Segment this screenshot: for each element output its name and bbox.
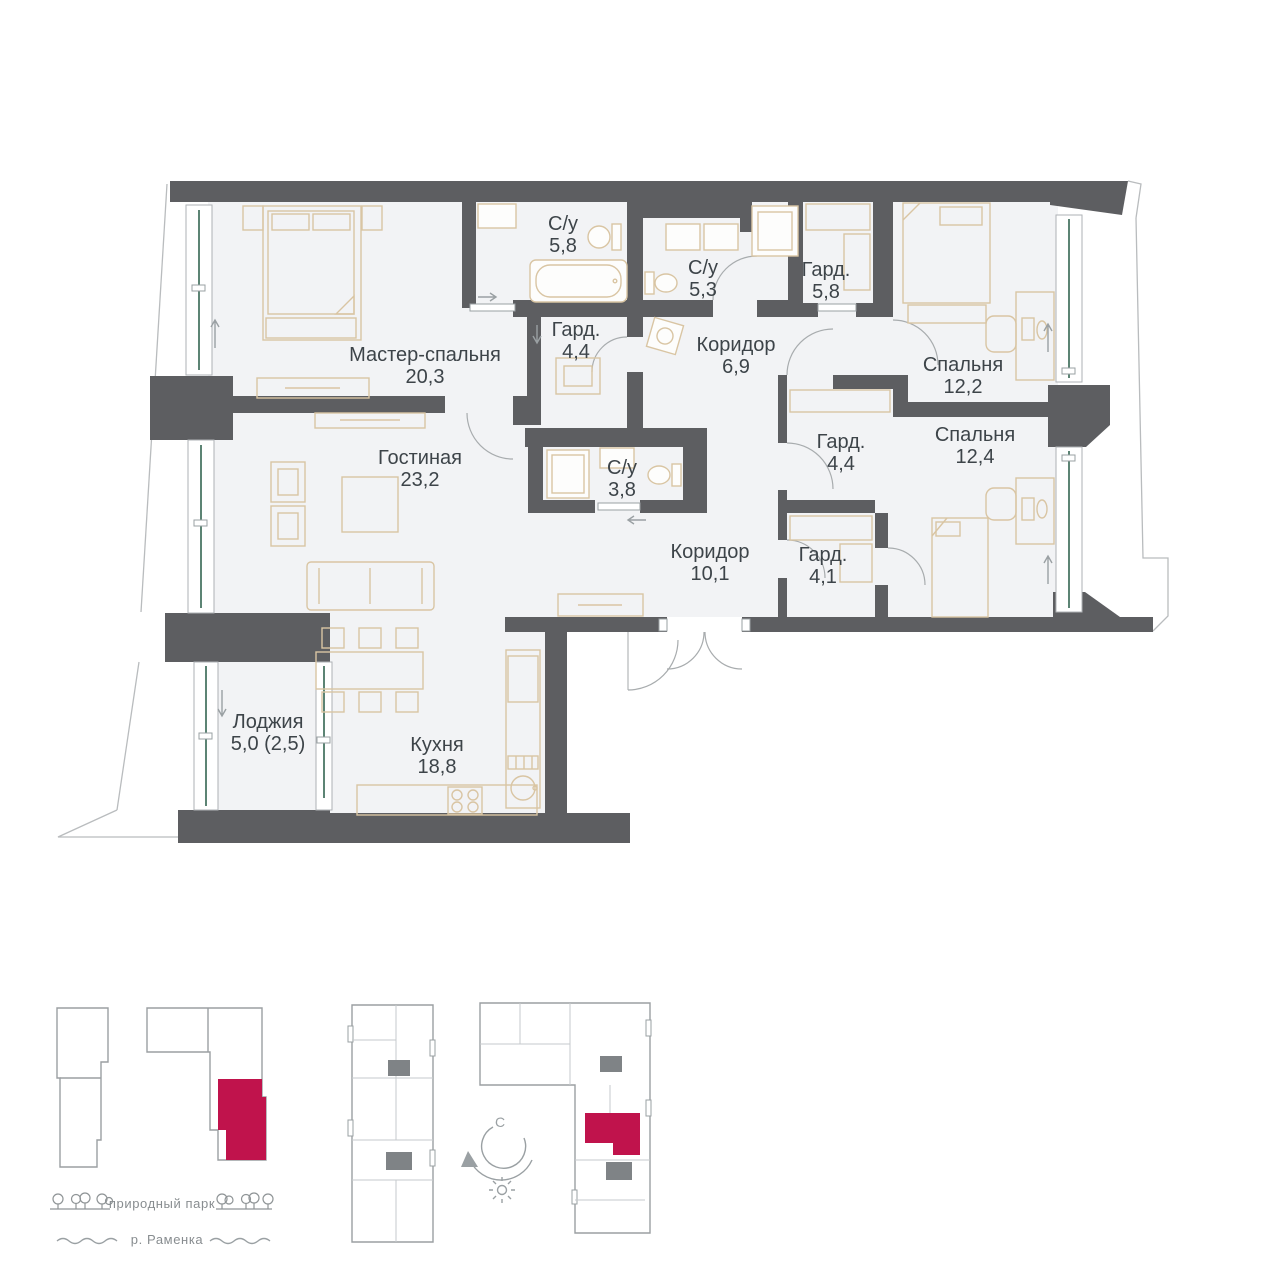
floor-plate-right (480, 1003, 651, 1233)
room-label-kitchen: Кухня18,8 (410, 734, 464, 778)
site-plan-buildings (57, 1008, 266, 1167)
toilet-icon (588, 226, 610, 248)
window-master-bedroom (186, 205, 212, 375)
room-label-bedroom-1: Спальня12,2 (923, 354, 1003, 398)
window-loggia-kitchen-partition (316, 662, 332, 810)
room-label-wardrobe-3: Гард.4,4 (817, 431, 866, 475)
building-outline-left (57, 1008, 108, 1167)
room-label-loggia: Лоджия5,0 (2,5) (231, 711, 305, 755)
sun-icon (489, 1177, 515, 1203)
compass-north-label: С (495, 1115, 505, 1130)
room-label-bedroom-2: Спальня12,4 (935, 424, 1015, 468)
compass-north-icon (461, 1127, 532, 1180)
floor-plan-canvas (0, 0, 1280, 1280)
park-label: природный парк (109, 1197, 215, 1211)
room-label-bathroom-3: С/у3,8 (607, 457, 637, 501)
room-label-wardrobe-1: Гард.5,8 (802, 259, 851, 303)
room-label-bathroom-2: С/у5,3 (688, 257, 718, 301)
room-label-corridor-1: Коридор6,9 (697, 334, 776, 378)
sink-icon (478, 204, 516, 228)
window-living-room (188, 440, 214, 613)
window-bedroom-2 (1056, 447, 1082, 612)
room-label-corridor-2: Коридор10,1 (671, 541, 750, 585)
floor-plate-left (348, 1005, 435, 1242)
window-bedroom-1 (1056, 215, 1082, 382)
room-label-master-bedroom: Мастер-спальня20,3 (349, 344, 501, 388)
river-label: р. Раменка (131, 1233, 203, 1247)
toilet-icon (655, 274, 677, 292)
toilet-icon (648, 466, 670, 484)
room-label-wardrobe-4: Гард.4,1 (799, 544, 848, 588)
sink-icon (704, 224, 738, 250)
room-label-wardrobe-2: Гард.4,4 (552, 319, 601, 363)
floor-plan-page: Мастер-спальня20,3 С/у5,8 С/у5,3 Гард.5,… (0, 0, 1280, 1280)
sink-icon (666, 224, 700, 250)
room-label-bathroom-1: С/у5,8 (548, 213, 578, 257)
room-label-living-room: Гостиная23,2 (378, 447, 462, 491)
window-loggia (194, 662, 218, 810)
